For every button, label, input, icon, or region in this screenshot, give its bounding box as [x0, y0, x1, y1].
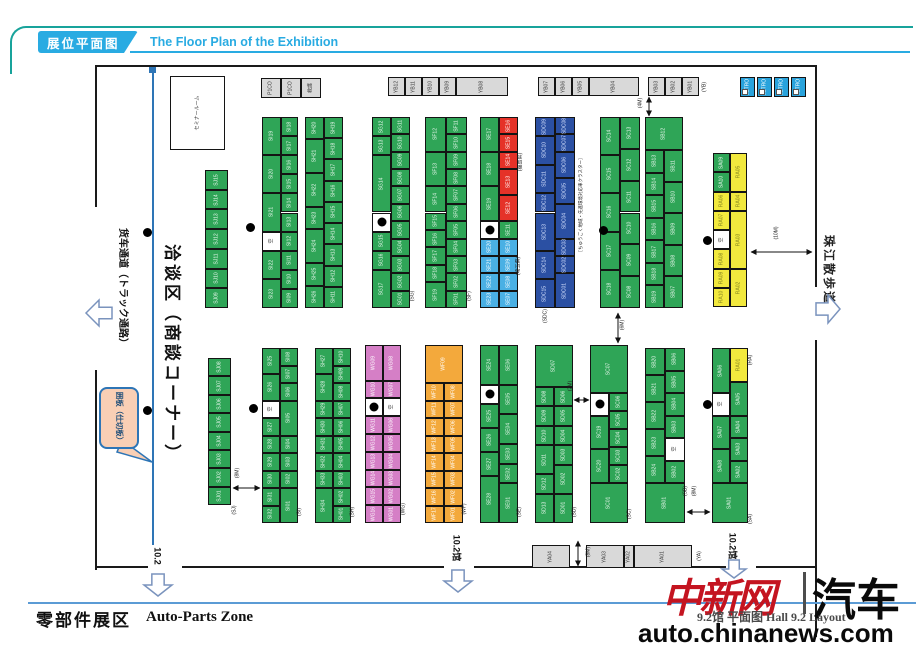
booth-cell: SJ02 — [208, 468, 231, 486]
booth-label: RA05 — [736, 166, 741, 179]
booth-label: SC18 — [608, 283, 613, 296]
booth-cell: SJ01 — [208, 487, 231, 505]
booth-cell: WF02 — [444, 488, 463, 506]
door-notch — [776, 89, 782, 95]
booth-label: SJ05 — [217, 417, 222, 428]
booth-label: SH18 — [331, 143, 336, 156]
booth-label: SG05 — [398, 223, 403, 236]
booth-label: SH29 — [322, 403, 327, 416]
booth-cell: WF15 — [425, 471, 444, 489]
pillar-dot — [143, 406, 152, 415]
booth-label: SB23 — [653, 436, 658, 448]
booth-cell: SI01 — [280, 488, 298, 523]
booth-cell: SG03 — [391, 256, 410, 273]
booth-label: SG04 — [398, 241, 403, 254]
plan-label-text: ［ちゅうごく地域・先進環境対応車クラスター］ — [579, 156, 584, 255]
booth-cell: SI15 — [281, 174, 298, 193]
booth-cell: SI30 — [262, 471, 280, 489]
booth-cell: SE21 — [480, 256, 499, 273]
booth-cell: SH15 — [324, 202, 343, 223]
booth-cell: WF13 — [425, 436, 444, 454]
booth-cell: SH34 — [315, 488, 333, 523]
booth-cell: SH08 — [333, 383, 351, 401]
booth-cell: SB18 — [645, 263, 664, 286]
booth-label: SI28 — [269, 439, 274, 449]
booth-label: SD05 — [561, 410, 566, 423]
booth-label: WG02 — [390, 489, 395, 503]
booth-label: SG17 — [379, 282, 384, 295]
service-box-label: YB09 — [445, 80, 450, 92]
wall — [182, 566, 444, 568]
service-box: YA03 — [586, 545, 624, 568]
plan-label-text: 10.2 — [153, 547, 162, 565]
booth-cell: SH11 — [324, 287, 343, 308]
booth-cell: SB22 — [645, 402, 665, 429]
plan-label-text: 10.2馆 — [728, 533, 737, 560]
booth-label: SI16 — [287, 160, 292, 170]
booth-cell: SB06 — [665, 348, 685, 371]
booth-label: WG05 — [390, 436, 395, 450]
booth-label: RA06 — [719, 195, 724, 208]
booth-label: SG14 — [379, 177, 384, 190]
booth-cell: SB16 — [645, 218, 664, 241]
booth-cell: SF16 — [425, 230, 446, 247]
booth-cell: SH16 — [324, 181, 343, 202]
booth-cell: SH23 — [305, 207, 324, 229]
booth-cell: SD03 — [554, 445, 573, 464]
booth-label: RA08 — [719, 253, 724, 266]
booth-cell: SF15 — [425, 213, 446, 230]
booth-cell: SD12 — [535, 474, 554, 493]
booth-label: SH19 — [331, 121, 336, 134]
booth-label: SB14 — [652, 178, 657, 190]
booth-cell: SE23 — [480, 291, 499, 308]
booth-label: SC20 — [597, 460, 602, 473]
booth-cell: SF10 — [446, 134, 467, 151]
booth-cell: SD04 — [554, 426, 573, 445]
booth-label: SH33 — [322, 473, 327, 486]
booth-cell: SB07 — [664, 276, 683, 308]
service-box-label: YB07 — [544, 80, 549, 92]
booth-cell: SG10 — [391, 134, 410, 151]
booth-label: SD10 — [542, 429, 547, 442]
booth-label: SJ10 — [214, 273, 219, 284]
booth-label: SC07 — [607, 363, 612, 376]
booth-label: SF06 — [454, 207, 459, 219]
booth-label: WF04 — [451, 455, 456, 468]
booth-cell: WF12 — [425, 418, 444, 436]
booth-label: SD03 — [561, 449, 566, 462]
booth-label: SD07 — [552, 360, 557, 373]
booth-label: WG16 — [372, 507, 377, 521]
booth-label: SJ14 — [214, 194, 219, 205]
booth-label: SG15 — [379, 235, 384, 248]
partition-line — [152, 70, 154, 545]
booth-cell: SD05 — [554, 406, 573, 425]
partition-callout: 囲板（仕切板） — [99, 387, 139, 449]
booth-cell: SDC07 — [555, 134, 575, 151]
booth-label: SC02 — [616, 468, 621, 481]
booth-cell: WG14 — [365, 470, 383, 488]
booth-cell: SDC06 — [555, 152, 575, 178]
booth-label: 空 — [269, 407, 274, 412]
booth-cell: SH24 — [305, 229, 324, 263]
booth-cell: WF14 — [425, 453, 444, 471]
booth-cell: WF17 — [425, 506, 444, 524]
booth-cell: SI04 — [280, 436, 298, 454]
booth-label: SE25 — [487, 410, 492, 422]
booth-label: SE04 — [506, 423, 511, 435]
booth-label: SC11 — [628, 190, 633, 202]
service-box: YA01 — [634, 545, 692, 568]
booth-label: SD12 — [542, 478, 547, 491]
booth-label: SE05 — [506, 393, 511, 405]
service-box-label: YB10 — [428, 80, 433, 92]
booth-cell: SJ09 — [205, 288, 228, 308]
booth-label: SI25 — [269, 356, 274, 366]
booth-cell: WG09 — [365, 345, 383, 381]
booth-label: RA03 — [736, 233, 741, 246]
booth-cell: SG01 — [391, 291, 410, 308]
booth-cell: SI03 — [280, 453, 298, 471]
booth-cell: SH05 — [333, 436, 351, 454]
booth-label: WF17 — [432, 508, 437, 521]
booth-label: SD13 — [542, 502, 547, 515]
booth-cell: SI10 — [281, 270, 298, 289]
plan-label-text: (SH) — [351, 507, 356, 517]
booth-label: WF06 — [451, 420, 456, 433]
booth-cell: SH10 — [333, 348, 351, 366]
service-box-label: 救護 — [309, 83, 314, 93]
service-box: YB02 — [665, 77, 682, 96]
plan-label-text: (WG) — [402, 503, 407, 515]
booth-cell: SF19 — [425, 282, 446, 308]
booth-label: SC01 — [607, 497, 612, 510]
booth-cell: WG06 — [383, 416, 401, 434]
booth-label: SI15 — [287, 179, 292, 189]
booth-label: SE08 — [506, 276, 511, 288]
booth-cell: SF04 — [446, 239, 467, 256]
booth-cell: RA10 — [713, 288, 730, 307]
plan-label-text: (福島県) — [519, 153, 524, 171]
booth-label: SE11 — [506, 224, 511, 236]
booth-label: SI06 — [287, 387, 292, 397]
booth-label: SA08 — [719, 460, 724, 472]
booth-cell: SI28 — [262, 436, 280, 454]
booth-cell: WF09 — [425, 345, 463, 383]
booth-cell: SE07 — [499, 291, 518, 308]
booth-cell: SE19 — [480, 186, 499, 221]
booth-cell: SC02 — [609, 465, 628, 483]
booth-label: SDC08 — [563, 118, 568, 134]
booth-cell: WG08 — [383, 345, 401, 381]
pillar-cell — [480, 221, 499, 238]
plan-label-text: (埼玉県) — [517, 257, 522, 275]
empty-booth-cell: 空 — [262, 232, 281, 251]
booth-label: SH13 — [331, 249, 336, 262]
booth-label: SC05 — [616, 414, 621, 427]
booth-label: SI20 — [269, 169, 274, 179]
booth-label: SI03 — [287, 457, 292, 467]
booth-cell: SJ08 — [208, 358, 231, 376]
booth-cell: SH14 — [324, 223, 343, 244]
booth-label: RA10 — [719, 291, 724, 304]
booth-label: SE26 — [487, 434, 492, 446]
pillar-dot — [485, 225, 494, 234]
booth-label: SD04 — [561, 429, 566, 442]
booth-cell: SF17 — [425, 247, 446, 264]
booth-cell: SDC10 — [535, 136, 555, 165]
booth-cell: SA06 — [712, 348, 730, 393]
booth-cell: SE24 — [480, 345, 499, 385]
service-box: YB08 — [456, 77, 508, 96]
booth-cell: SB13 — [645, 150, 664, 173]
booth-label: SF07 — [454, 189, 459, 201]
service-box: YB04 — [589, 77, 639, 96]
booth-label: SJ02 — [217, 472, 222, 483]
booth-label: SDC03 — [563, 239, 568, 255]
booth-label: SH27 — [322, 355, 327, 368]
service-box-label: YB11 — [411, 81, 416, 93]
pillar-dot — [485, 390, 494, 399]
booth-label: SJ06 — [217, 398, 222, 409]
plan-label-text: 10.2馆 — [452, 535, 461, 562]
booth-label: SD02 — [561, 473, 566, 486]
booth-label: SE16 — [506, 120, 511, 132]
booth-label: SJ08 — [217, 361, 222, 372]
booth-label: SA10 — [719, 176, 724, 188]
booth-label: SDC10 — [543, 142, 548, 158]
door-notch — [793, 89, 799, 95]
booth-label: SDC15 — [543, 286, 548, 302]
plan-label-text: (SI) — [298, 508, 303, 516]
booth-cell: SJ11 — [205, 249, 228, 269]
plan-label-text: 珠江散歩道 — [823, 235, 835, 305]
booth-cell: SB02 — [665, 461, 685, 484]
booth-cell: SF01 — [446, 291, 467, 308]
booth-label: SH05 — [340, 438, 345, 451]
booth-label: WF15 — [432, 473, 437, 486]
booth-cell: SE06 — [499, 345, 518, 385]
booth-cell: WF01 — [444, 506, 463, 524]
booth-cell: SH20 — [305, 117, 324, 139]
booth-label: SB21 — [653, 382, 658, 394]
pillar-dot — [377, 218, 386, 227]
booth-cell: SE13 — [499, 169, 518, 195]
booth-label: SI14 — [287, 198, 292, 208]
booth-cell: SD09 — [535, 406, 554, 425]
booth-cell: SF12 — [425, 117, 446, 152]
booth-cell: SI21 — [262, 193, 281, 231]
booth-label: WG03 — [390, 471, 395, 485]
service-box-label: YB05 — [578, 80, 583, 92]
booth-label: SDC09 — [543, 118, 548, 134]
booth-cell: SJ14 — [205, 190, 228, 210]
header-tab-label: 展位平面图 — [47, 33, 120, 52]
booth-label: SC03 — [616, 450, 621, 463]
plan-label-text: (SG) — [411, 291, 416, 302]
booth-label: SE03 — [506, 448, 511, 460]
booth-cell: SH22 — [305, 173, 324, 207]
pillar-dot — [703, 400, 712, 409]
booth-label: WG11 — [372, 418, 377, 432]
booth-cell: SG15 — [372, 232, 391, 251]
page-title: The Floor Plan of the Exhibition — [150, 35, 338, 49]
booth-label: SDC14 — [543, 257, 548, 273]
booth-label: SH16 — [331, 185, 336, 198]
booth-label: SB04 — [673, 398, 678, 410]
booth-cell: SDC14 — [535, 251, 555, 280]
booth-cell: SB10 — [664, 182, 683, 214]
booth-label: SF19 — [433, 289, 438, 301]
booth-cell: SI32 — [262, 506, 280, 524]
booth-cell: SI31 — [262, 488, 280, 506]
booth-label: WF01 — [451, 508, 456, 521]
booth-cell: SC09 — [620, 244, 640, 276]
booth-cell: SE18 — [480, 152, 499, 187]
booth-label: SE10 — [506, 241, 511, 253]
booth-label: SH07 — [340, 403, 345, 416]
booth-cell: RA09 — [713, 269, 730, 288]
booth-label: SE18 — [487, 163, 492, 175]
service-box-label: YB06 — [561, 80, 566, 92]
booth-cell: WF07 — [444, 401, 463, 419]
booth-label: SH25 — [312, 268, 317, 281]
booth-cell: SI13 — [281, 213, 298, 232]
booth-label: SC16 — [608, 206, 613, 219]
booth-label: SH14 — [331, 227, 336, 240]
wall — [95, 370, 97, 570]
booth-cell: SC08 — [620, 276, 640, 308]
booth-cell: SF11 — [446, 117, 467, 134]
plan-label-text: (10M) — [775, 226, 780, 239]
service-box: YB07 — [538, 77, 555, 96]
booth-cell: SB03 — [665, 416, 685, 439]
booth-cell: SD01 — [554, 494, 573, 523]
door-notch — [742, 89, 748, 95]
booth-cell: SH01 — [333, 506, 351, 524]
booth-cell: SH09 — [333, 366, 351, 384]
booth-cell: SB05 — [665, 371, 685, 394]
booth-cell: SG16 — [372, 251, 391, 270]
booth-cell: SG07 — [391, 186, 410, 203]
booth-label: SB24 — [653, 463, 658, 475]
booth-label: SI30 — [269, 474, 274, 484]
service-box-label: YB02 — [671, 80, 676, 92]
booth-label: SJ03 — [217, 453, 222, 464]
booth-cell: SE22 — [480, 273, 499, 290]
booth-label: SG09 — [398, 154, 403, 167]
booth-cell: SE27 — [480, 452, 499, 476]
plan-label-text: (8M) — [693, 486, 698, 496]
booth-cell: WF06 — [444, 418, 463, 436]
booth-label: SE27 — [487, 458, 492, 470]
booth-cell: RA08 — [713, 249, 730, 268]
service-box: P1CO — [261, 78, 281, 98]
booth-label: WF10 — [432, 385, 437, 398]
wall — [815, 65, 817, 287]
wall — [95, 566, 148, 568]
booth-label: SB13 — [652, 155, 657, 167]
booth-cell: SJ05 — [208, 413, 231, 431]
booth-cell: SA07 — [712, 416, 730, 450]
booth-label: SG08 — [398, 171, 403, 184]
booth-label: SF12 — [433, 128, 438, 140]
booth-label: WG04 — [390, 454, 395, 468]
booth-label: SI01 — [287, 500, 292, 510]
booth-cell: WF08 — [444, 383, 463, 401]
booth-cell: SDC05 — [555, 178, 575, 204]
site-url: auto.chinanews.com — [638, 618, 894, 649]
booth-label: WG12 — [372, 436, 377, 450]
booth-cell: SI19 — [262, 117, 281, 155]
booth-cell: SC18 — [600, 270, 620, 308]
booth-cell: SE12 — [499, 195, 518, 221]
booth-label: WG10 — [372, 382, 377, 396]
booth-cell: SC04 — [609, 429, 628, 447]
booth-label: SD01 — [561, 502, 566, 515]
booth-label: WG01 — [390, 507, 395, 521]
booth-label: SC17 — [608, 244, 613, 257]
booth-cell: SA05 — [730, 382, 748, 416]
empty-booth-cell: 空 — [262, 401, 280, 419]
booth-cell: SB08 — [664, 245, 683, 277]
plan-label-text: (WF) — [463, 503, 468, 514]
plan-label-text: (YB) — [703, 82, 708, 92]
booth-cell: WG13 — [365, 452, 383, 470]
booth-label: WF09 — [442, 357, 447, 370]
service-box-label: YB12 — [394, 80, 399, 92]
booth-cell: SG04 — [391, 239, 410, 256]
booth-cell: SA10 — [713, 172, 730, 191]
booth-cell: SB17 — [645, 240, 664, 263]
booth-cell: SE28 — [480, 476, 499, 523]
booth-cell: RA04 — [730, 192, 747, 211]
booth-label: SJ15 — [214, 174, 219, 185]
booth-label: SJ12 — [214, 233, 219, 244]
booth-label: SB18 — [652, 268, 657, 280]
booth-cell: SB04 — [665, 393, 685, 416]
booth-cell: SF08 — [446, 169, 467, 186]
booth-cell: SE04 — [499, 414, 518, 444]
booth-label: SH28 — [322, 381, 327, 394]
booth-label: SE15 — [506, 137, 511, 149]
booth-label: SE06 — [506, 359, 511, 371]
booth-cell: SE20 — [480, 239, 499, 256]
booth-label: SE09 — [506, 258, 511, 270]
plan-label-text: (SF) — [468, 291, 473, 301]
booth-cell: SF14 — [425, 186, 446, 212]
booth-label: SH34 — [322, 499, 327, 512]
booth-label: SH21 — [312, 150, 317, 163]
booth-cell: SH02 — [333, 488, 351, 506]
booth-label: SI21 — [269, 207, 274, 217]
service-box-label: P1CO — [289, 81, 294, 95]
service-box-label: YA03 — [603, 551, 608, 563]
booth-cell: SC10 — [620, 213, 640, 245]
booth-cell: SB23 — [645, 429, 665, 456]
service-box: YB09 — [439, 77, 456, 96]
callout-text: 囲板（仕切板） — [115, 392, 123, 445]
booth-label: SE14 — [506, 154, 511, 166]
service-box: YB11 — [405, 77, 422, 96]
booth-label: RA02 — [736, 281, 741, 294]
booth-cell: SG09 — [391, 152, 410, 169]
booth-cell: SC12 — [620, 149, 640, 181]
booth-label: SB07 — [671, 286, 676, 298]
booth-label: 空 — [719, 402, 724, 407]
booth-cell: SB01 — [645, 483, 685, 523]
